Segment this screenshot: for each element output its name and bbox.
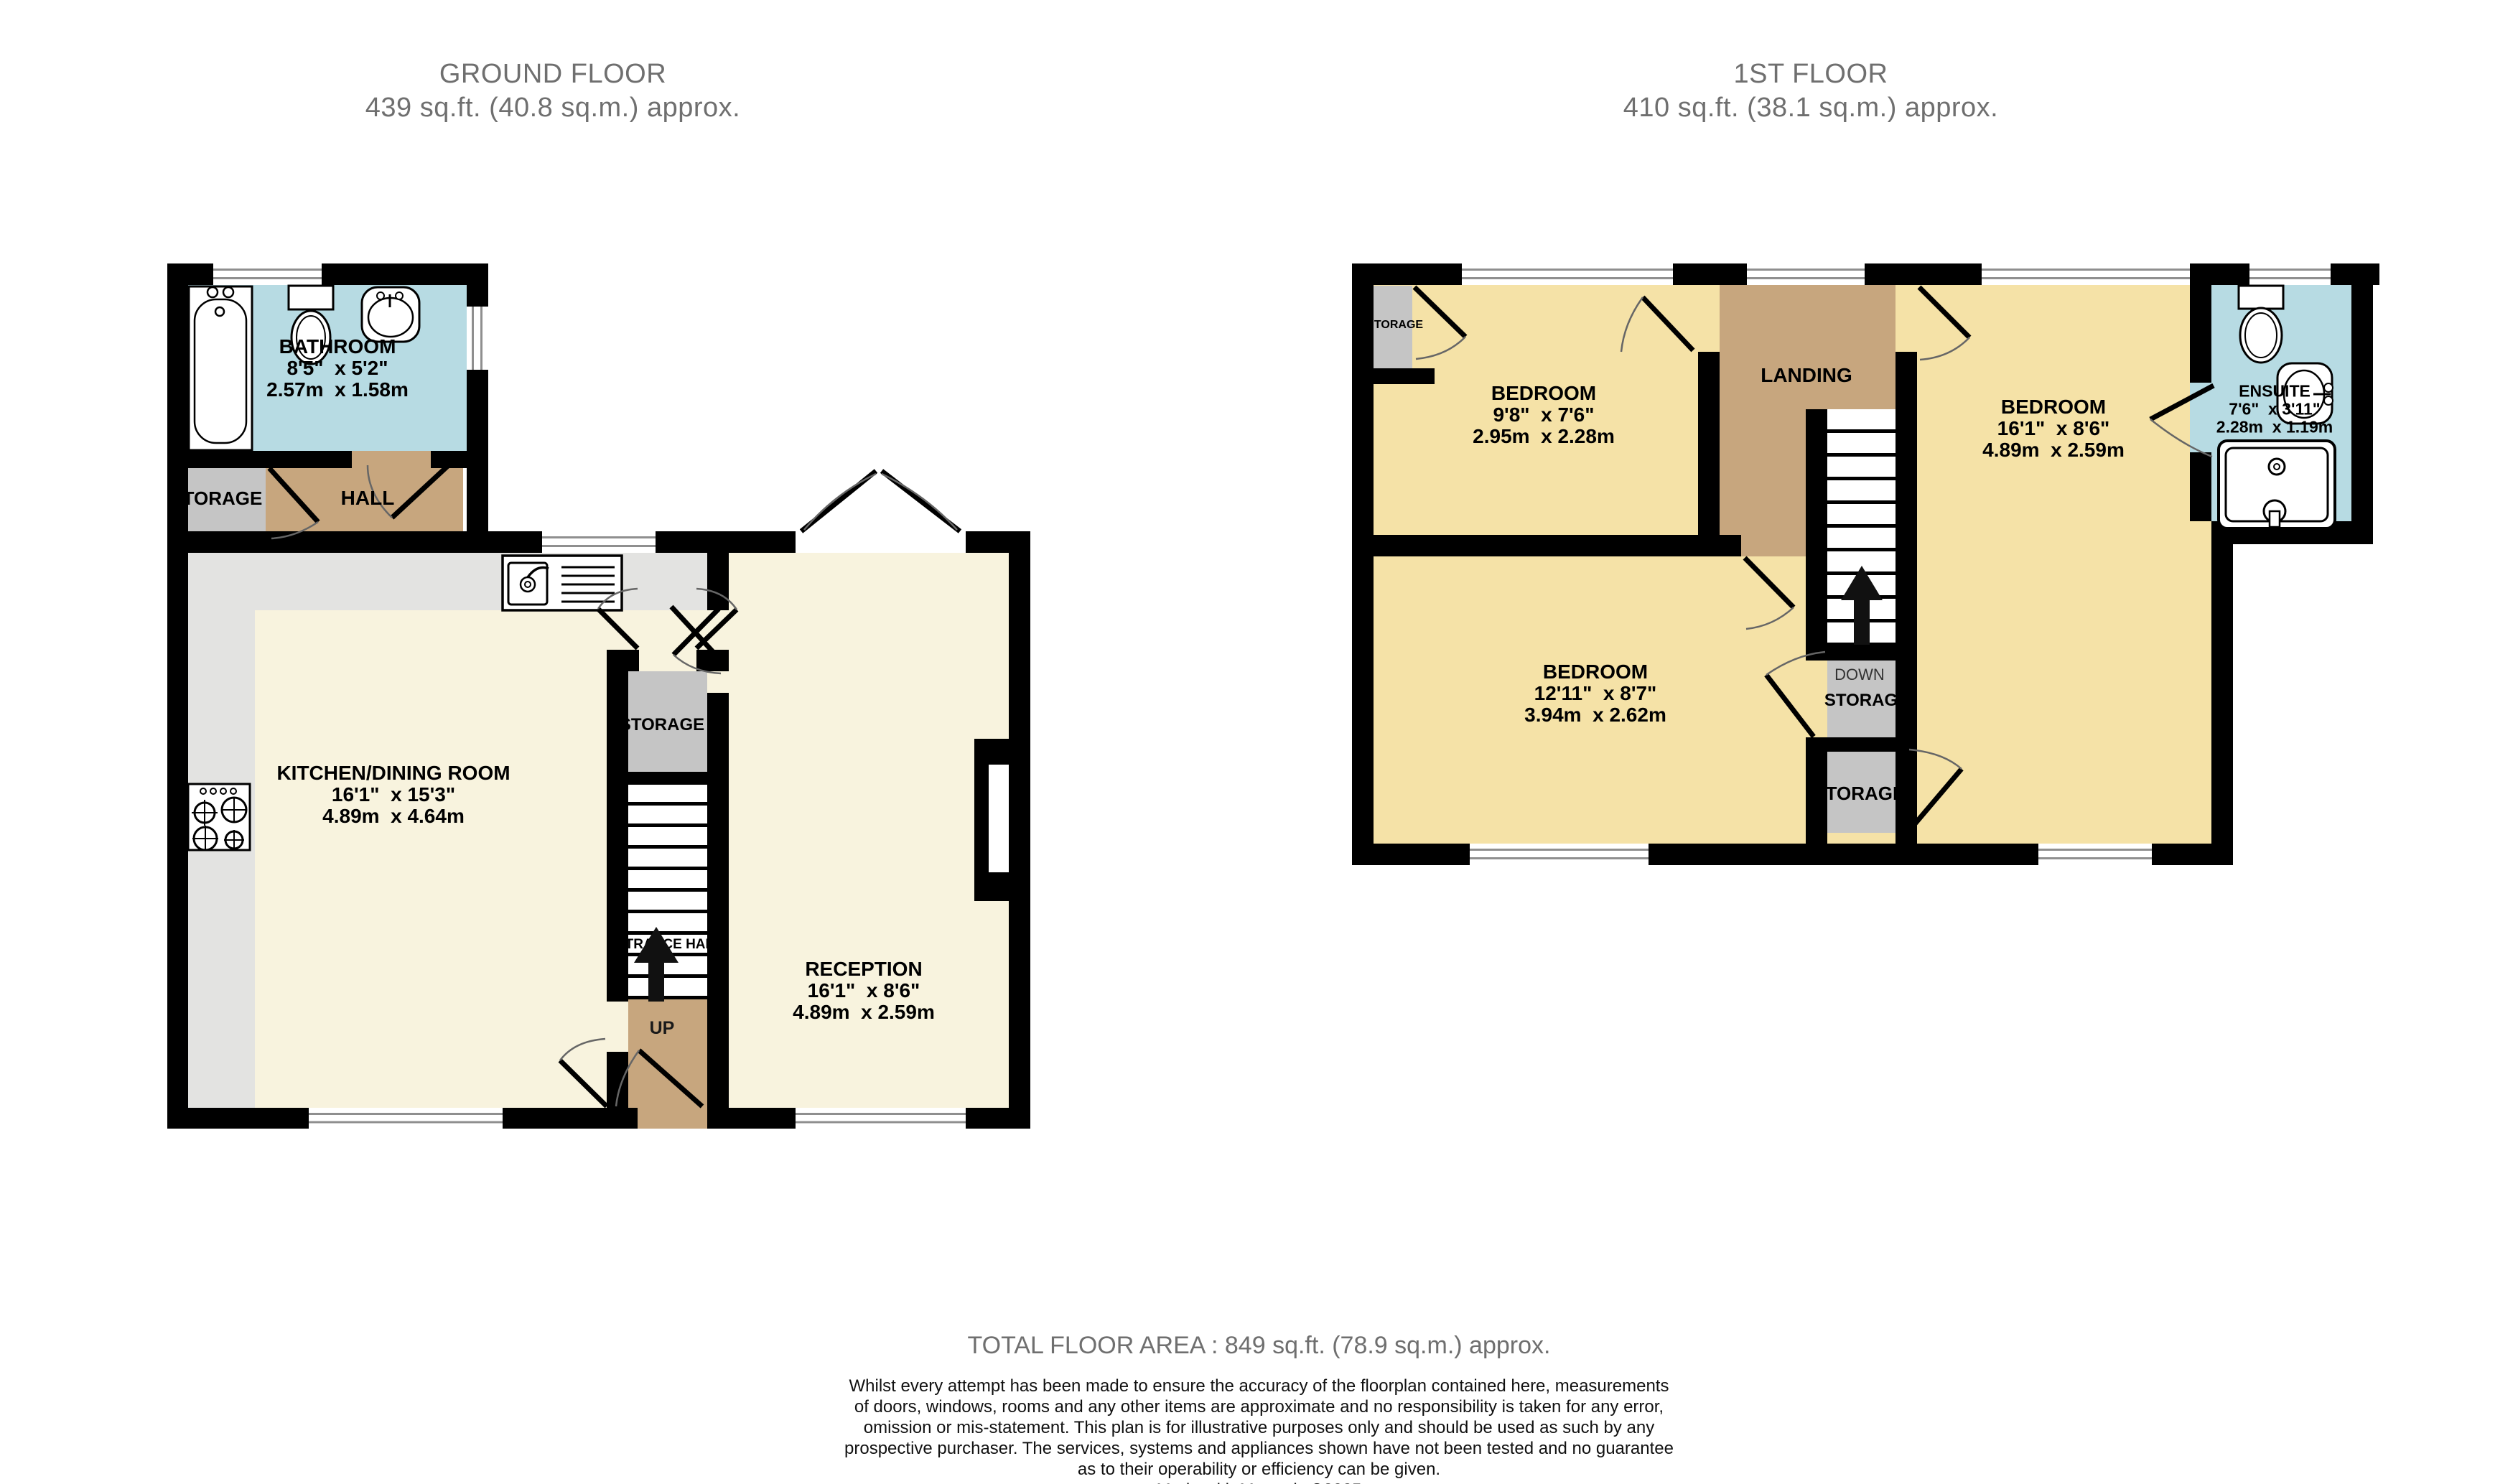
floor-area-text: 439 sq.ft. (40.8 sq.m.) approx. — [323, 91, 783, 125]
room-label-ensuite: ENSUITE 7'6" x 3'11" 2.28m x 1.19m — [2216, 383, 2333, 437]
room-dims-imperial: 16'1" x 8'6" — [1997, 418, 2110, 439]
bathtub-icon — [189, 286, 252, 450]
room-label-storage-bottom: TORAGE — [1826, 783, 1906, 804]
room-label-landing: LANDING — [1761, 365, 1852, 386]
room-name: ENSUITE — [2239, 383, 2311, 401]
room-name: TORAGE — [1374, 314, 1423, 336]
room-dims-metric: 4.89m x 4.64m — [322, 806, 465, 827]
room-name: STORAGE — [620, 714, 704, 736]
credit-line: Made with Metropix ©2025 — [0, 1480, 2518, 1484]
room-dims-imperial: 16'1" x 8'6" — [808, 980, 920, 1002]
room-dims-metric: 4.89m x 2.59m — [793, 1002, 935, 1023]
room-name: TORAGE — [183, 487, 263, 509]
direction-text: UP — [650, 1017, 675, 1039]
room-name: STORAG — [1824, 690, 1898, 711]
room-dims-imperial: 12'11" x 8'7" — [1534, 683, 1657, 704]
room-label-bedroom1: BEDROOM 9'8" x 7'6" 2.95m x 2.28m — [1473, 383, 1615, 447]
basin-icon — [362, 287, 419, 342]
total-floor-area: TOTAL FLOOR AREA : 849 sq.ft. (78.9 sq.m… — [0, 1332, 2518, 1360]
ensuite-toilet-icon — [2239, 286, 2283, 363]
room-label-reception: RECEPTION 16'1" x 8'6" 4.89m x 2.59m — [793, 958, 935, 1023]
room-label-down-storage: STORAG — [1824, 690, 1898, 711]
room-name: BATHROOM — [279, 336, 396, 358]
stairs-down-arrow-icon — [1841, 566, 1883, 645]
room-dims-metric: 2.28m x 1.19m — [2216, 419, 2333, 437]
room-dims-imperial: 8'5" x 5'2" — [286, 358, 388, 379]
room-dims-metric: 3.94m x 2.62m — [1524, 704, 1666, 726]
disclaimer-line: of doors, windows, rooms and any other i… — [0, 1396, 2518, 1417]
room-dims-imperial: 16'1" x 15'3" — [332, 784, 455, 806]
floor-title-text: 1ST FLOOR — [1581, 57, 2041, 91]
shower-icon — [2219, 441, 2335, 528]
label-down: DOWN — [1834, 664, 1885, 686]
room-dims-imperial: 9'8" x 7'6" — [1493, 404, 1594, 426]
room-label-storage-top: TORAGE — [1374, 314, 1423, 336]
fixtures-and-doors-layer — [0, 0, 2518, 1484]
room-dims-metric: 2.95m x 2.28m — [1473, 426, 1615, 447]
label-up: UP — [650, 1017, 675, 1039]
room-label-hall: HALL — [341, 487, 395, 509]
ground-floor-title: GROUND FLOOR 439 sq.ft. (40.8 sq.m.) app… — [323, 57, 783, 125]
room-name: KITCHEN/DINING ROOM — [276, 762, 510, 784]
room-name: TORAGE — [1826, 783, 1906, 804]
disclaimer: Whilst every attempt has been made to en… — [0, 1376, 2518, 1484]
room-name: HALL — [341, 487, 395, 509]
room-name: BEDROOM — [2001, 396, 2106, 418]
disclaimer-line: Whilst every attempt has been made to en… — [0, 1376, 2518, 1396]
stairs-up-arrow-icon — [634, 927, 679, 1002]
disclaimer-line: as to their operability or efficiency ca… — [0, 1459, 2518, 1480]
room-dims-metric: 2.57m x 1.58m — [266, 379, 409, 401]
room-label-bedroom2: BEDROOM 16'1" x 8'6" 4.89m x 2.59m — [1982, 396, 2125, 461]
room-label-storage: TORAGE — [183, 487, 263, 509]
floor-area-text: 410 sq.ft. (38.1 sq.m.) approx. — [1581, 91, 2041, 125]
room-label-bedroom3: BEDROOM 12'11" x 8'7" 3.94m x 2.62m — [1524, 661, 1666, 726]
floorplan: GROUND FLOOR 439 sq.ft. (40.8 sq.m.) app… — [0, 0, 2518, 1484]
room-label-kitchen: KITCHEN/DINING ROOM 16'1" x 15'3" 4.89m … — [276, 762, 510, 827]
room-label-stairs-storage: STORAGE — [620, 714, 704, 736]
room-name: RECEPTION — [805, 958, 922, 980]
room-dims-imperial: 7'6" x 3'11" — [2229, 401, 2320, 419]
direction-text: DOWN — [1834, 664, 1885, 686]
room-label-bathroom: BATHROOM 8'5" x 5'2" 2.57m x 1.58m — [266, 336, 409, 401]
room-dims-metric: 4.89m x 2.59m — [1982, 439, 2125, 461]
hob-icon — [188, 784, 250, 850]
floor-title-text: GROUND FLOOR — [323, 57, 783, 91]
disclaimer-line: prospective purchaser. The services, sys… — [0, 1438, 2518, 1459]
first-floor-title: 1ST FLOOR 410 sq.ft. (38.1 sq.m.) approx… — [1581, 57, 2041, 125]
room-name: BEDROOM — [1543, 661, 1648, 683]
room-name: LANDING — [1761, 365, 1852, 386]
room-name: BEDROOM — [1491, 383, 1596, 404]
disclaimer-line: omission or mis-statement. This plan is … — [0, 1417, 2518, 1438]
